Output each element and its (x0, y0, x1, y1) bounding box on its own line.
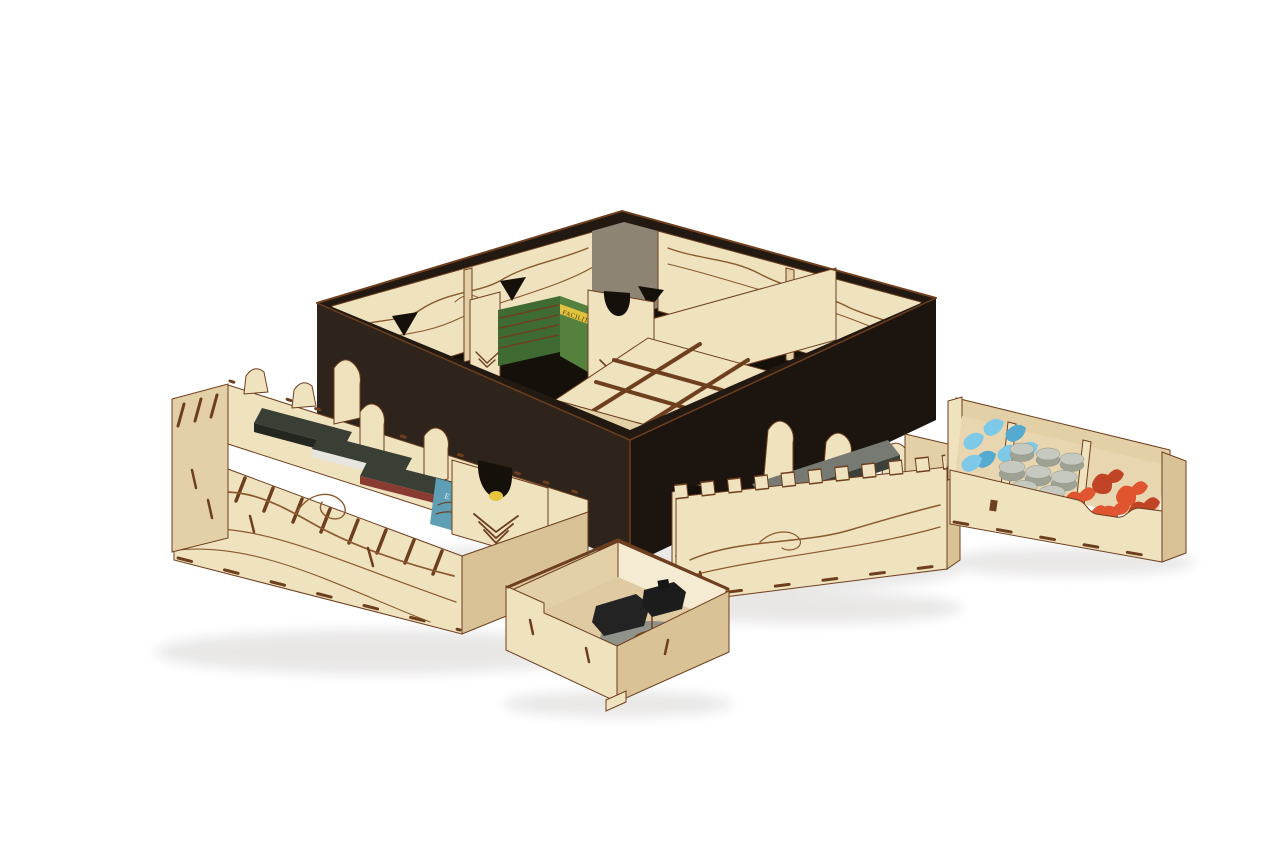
gray-disc (1036, 448, 1060, 467)
scene-canvas: FACILITY (0, 0, 1280, 853)
tray-end-cap-right (1162, 452, 1186, 562)
divider-wall (334, 360, 360, 424)
divider-tab (292, 383, 316, 408)
tray-end-cap-left (172, 384, 228, 552)
right-bits-tray (948, 397, 1186, 562)
cap-face (172, 384, 228, 552)
gray-disc (1060, 453, 1084, 472)
yellow-piece (489, 491, 503, 501)
gray-disc (999, 461, 1025, 482)
product-photo: FACILITY (0, 0, 1280, 853)
ship-funnel (657, 579, 669, 590)
gray-disc (1010, 443, 1034, 462)
divider-tab (244, 369, 268, 394)
